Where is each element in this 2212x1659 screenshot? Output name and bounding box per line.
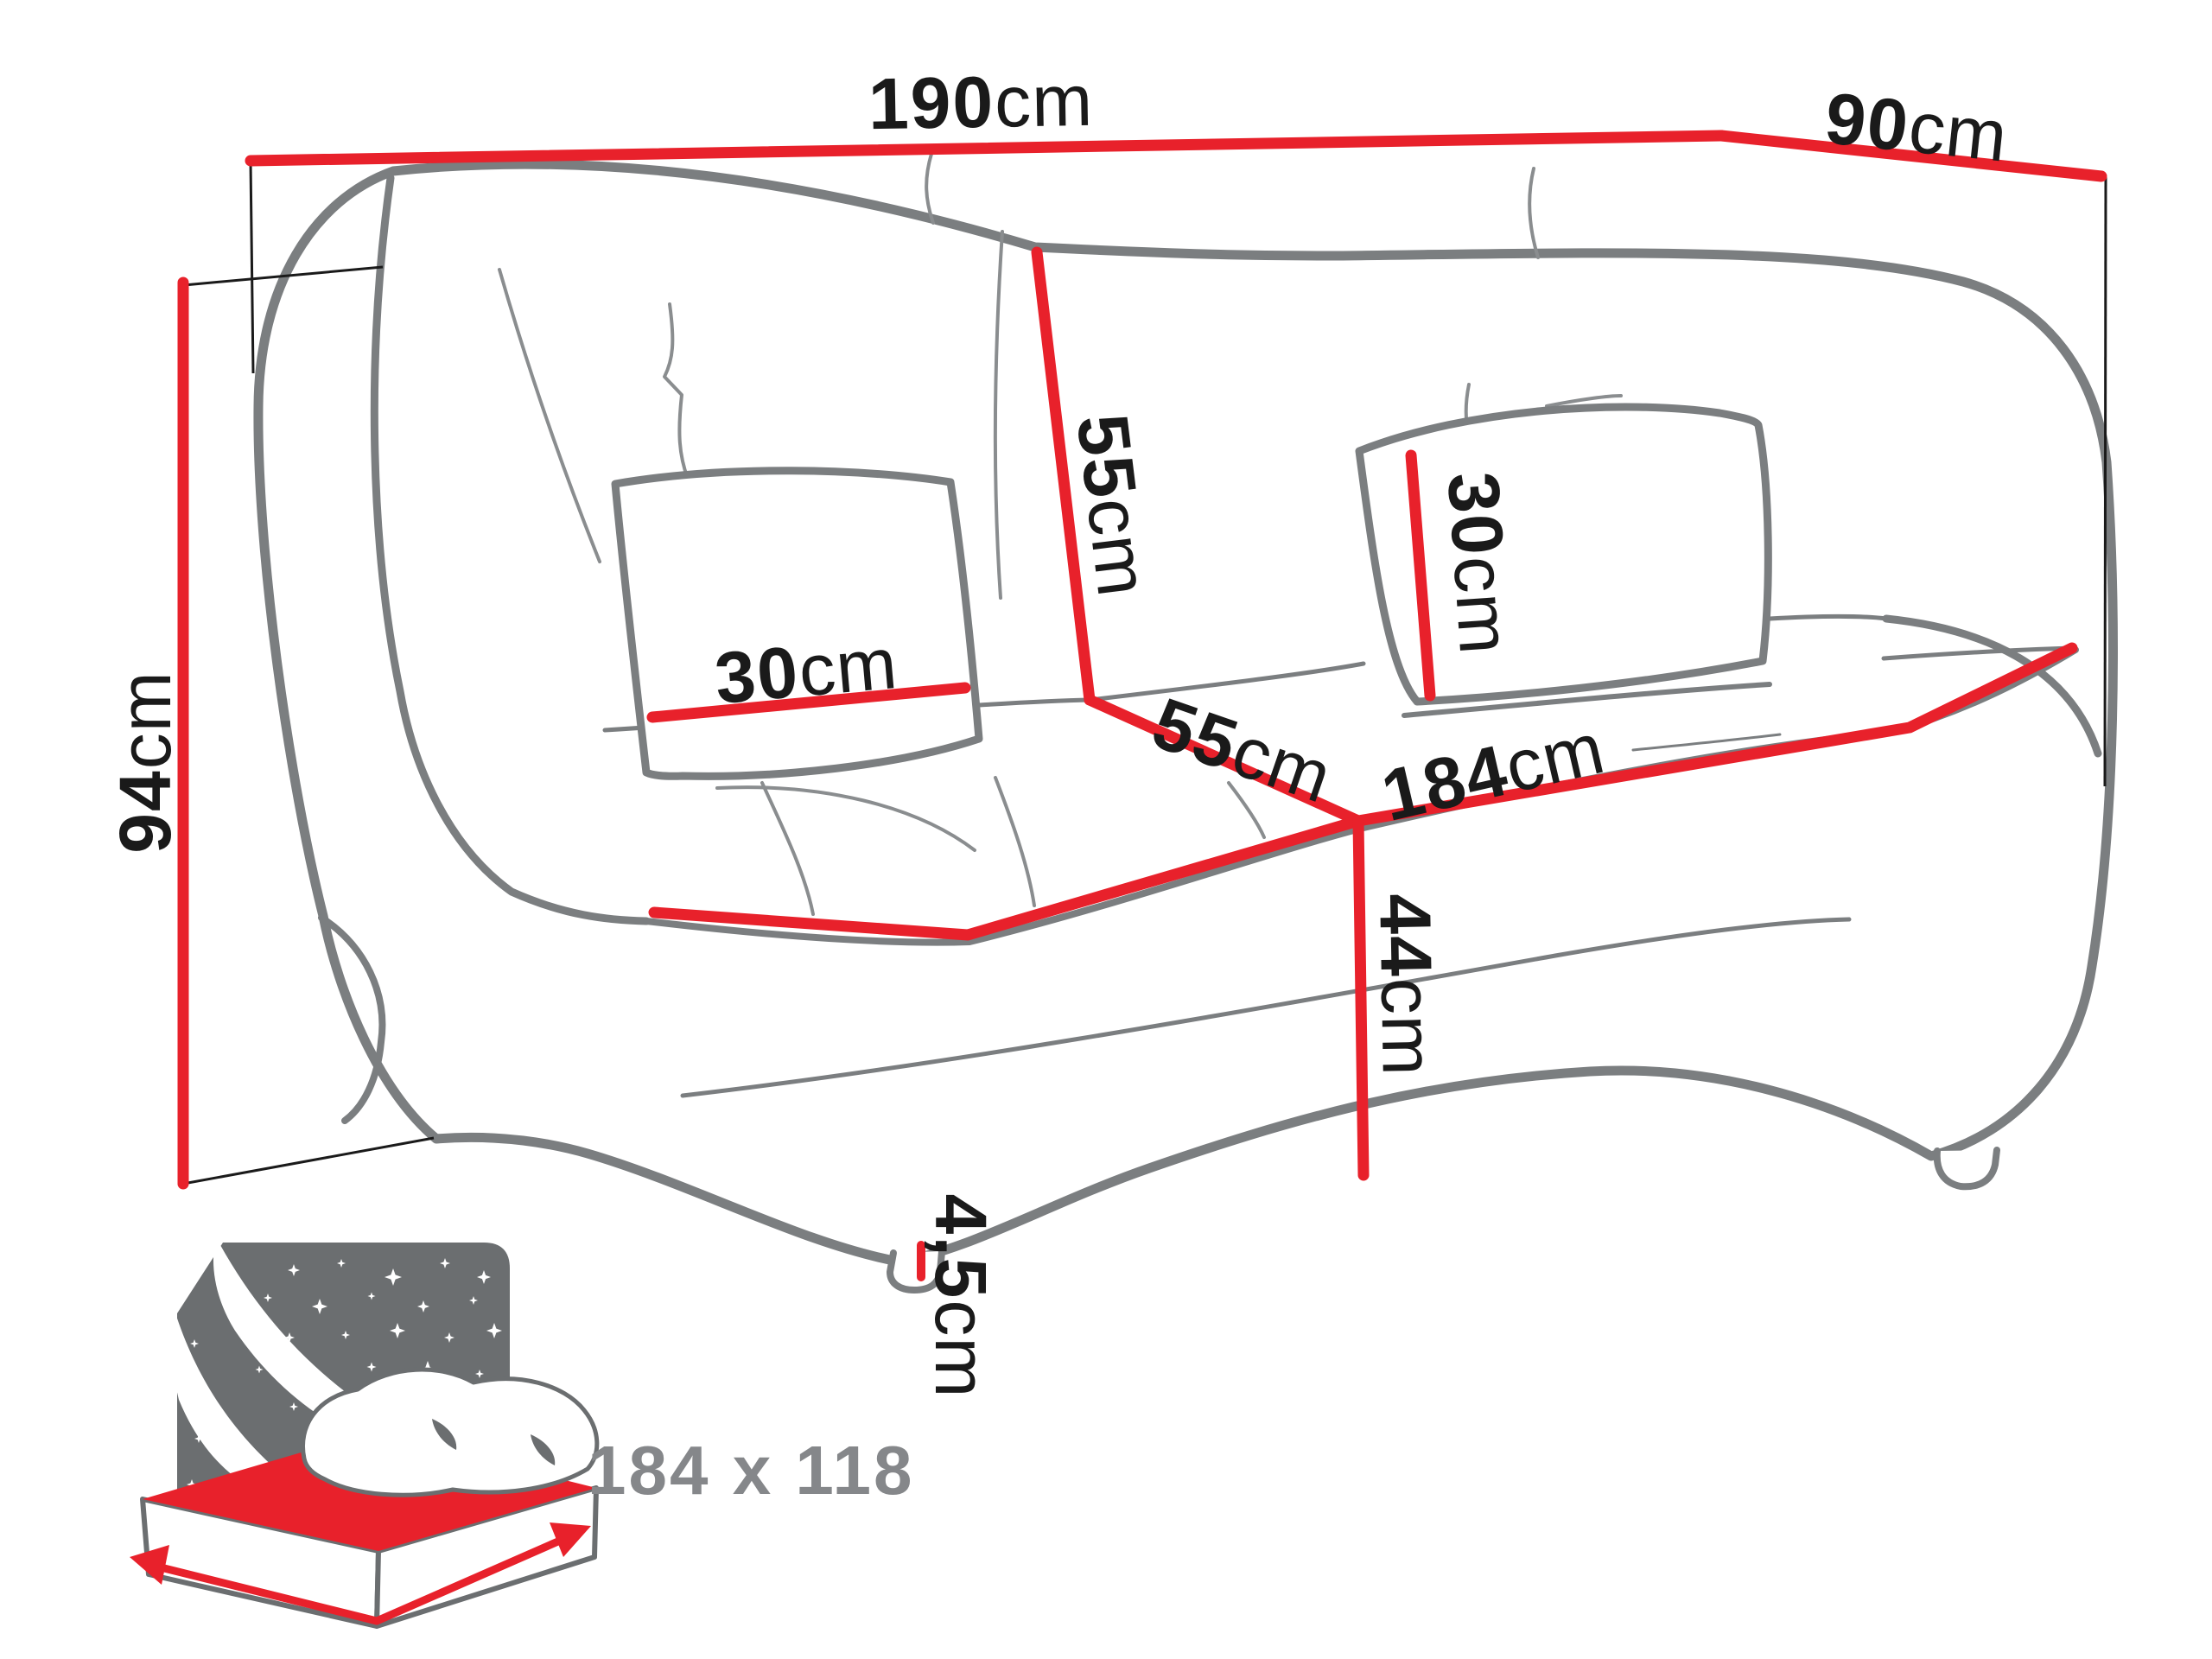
- dim-pillow-right-label: 30cm: [1437, 470, 1522, 658]
- diagram-canvas: [0, 0, 2212, 1659]
- dim-value: 190: [868, 61, 995, 145]
- dim-unit: cm: [1366, 977, 1449, 1077]
- dim-overall-height-label: 94cm: [109, 671, 181, 853]
- dim-value: 90: [1821, 77, 1914, 167]
- right-front-leg: [1937, 1150, 1997, 1186]
- dim-leg-height-label: 4,5cm: [925, 1194, 997, 1399]
- dim-unit: cm: [1439, 553, 1527, 657]
- floor-line-left: [183, 1138, 434, 1184]
- dim-value: 55: [1061, 410, 1152, 503]
- dim-unit: cm: [994, 60, 1094, 143]
- dim-pillow-left-label: 30cm: [712, 626, 900, 715]
- dim-seat-height-label: 44cm: [1369, 893, 1445, 1077]
- backrest-notch-top-center: [926, 154, 933, 223]
- dim-overall-width-label: 190cm: [868, 64, 1094, 141]
- dim-unit: cm: [796, 622, 901, 712]
- dim-unit: cm: [105, 671, 186, 769]
- dim-value: 30: [1433, 469, 1520, 559]
- sleeping-area-size-label: 184 x 118: [588, 1436, 914, 1505]
- sleeping-area-icon: [130, 1237, 597, 1626]
- left-pillow: [615, 471, 979, 777]
- dim-unit: cm: [1071, 493, 1164, 601]
- dim-line-seatheight-44: [1358, 821, 1363, 1175]
- dim-overall-depth-label: 90cm: [1821, 81, 2011, 173]
- corner-right-line: [2105, 177, 2106, 786]
- dim-value: 4,5: [920, 1194, 1001, 1300]
- corner-back-left-line: [251, 162, 253, 373]
- dim-unit: cm: [1905, 86, 2012, 176]
- seat-back-edge-right: [1770, 616, 1886, 619]
- backrest-notch-top-right: [1529, 168, 1538, 257]
- dim-value: 30: [712, 631, 803, 719]
- dim-value: 44: [1364, 893, 1447, 978]
- dim-value: 94: [105, 769, 186, 853]
- sofa-dimension-diagram: 190cm 90cm 94cm 55cm 55cm 184cm 44cm 30c…: [0, 0, 2212, 1659]
- dim-unit: cm: [920, 1300, 1001, 1398]
